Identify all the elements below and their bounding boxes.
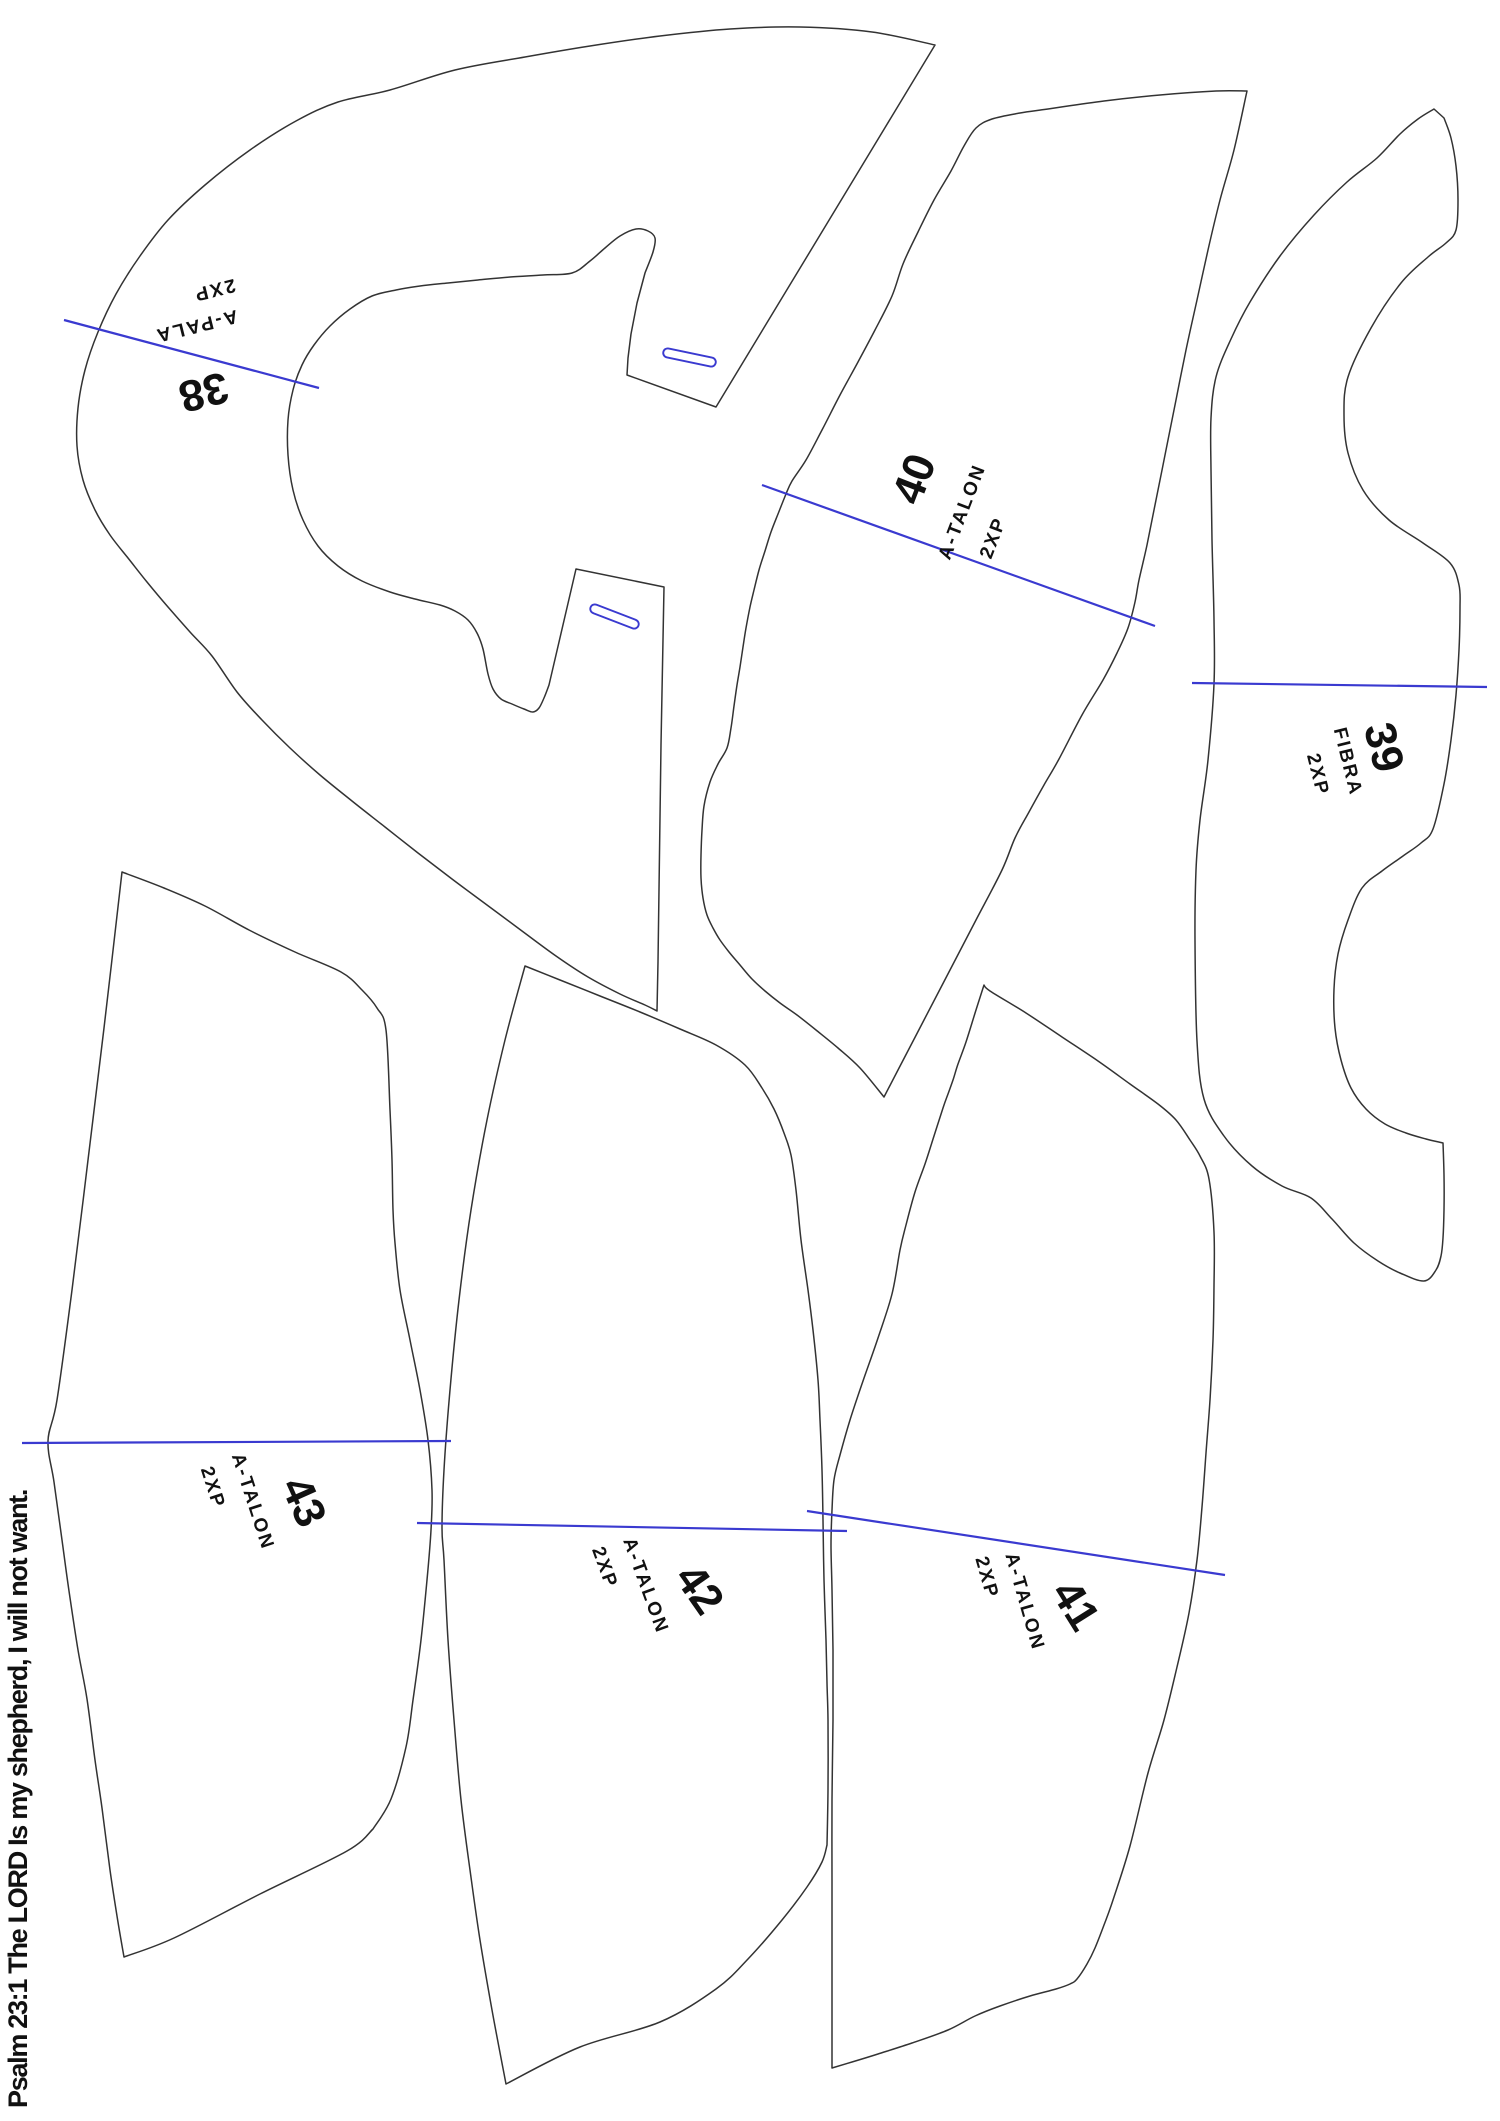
svg-text:41: 41 [1042,1572,1109,1639]
svg-text:38: 38 [174,362,233,421]
svg-text:A-TALON: A-TALON [227,1451,278,1553]
svg-text:A-TALON: A-TALON [1000,1550,1048,1653]
svg-text:2XP: 2XP [196,1464,229,1512]
svg-text:A-PALA: A-PALA [152,305,239,346]
svg-text:2XP: 2XP [1302,751,1333,798]
svg-text:39: 39 [1354,718,1413,777]
svg-text:43: 43 [271,1470,336,1535]
svg-text:40: 40 [883,447,946,510]
svg-text:2XP: 2XP [970,1554,1002,1601]
svg-text:42: 42 [665,1555,733,1623]
svg-text:2XP: 2XP [191,274,238,305]
svg-text:A-TALON: A-TALON [618,1535,672,1637]
svg-text:2XP: 2XP [587,1544,621,1592]
svg-text:2XP: 2XP [976,514,1011,562]
